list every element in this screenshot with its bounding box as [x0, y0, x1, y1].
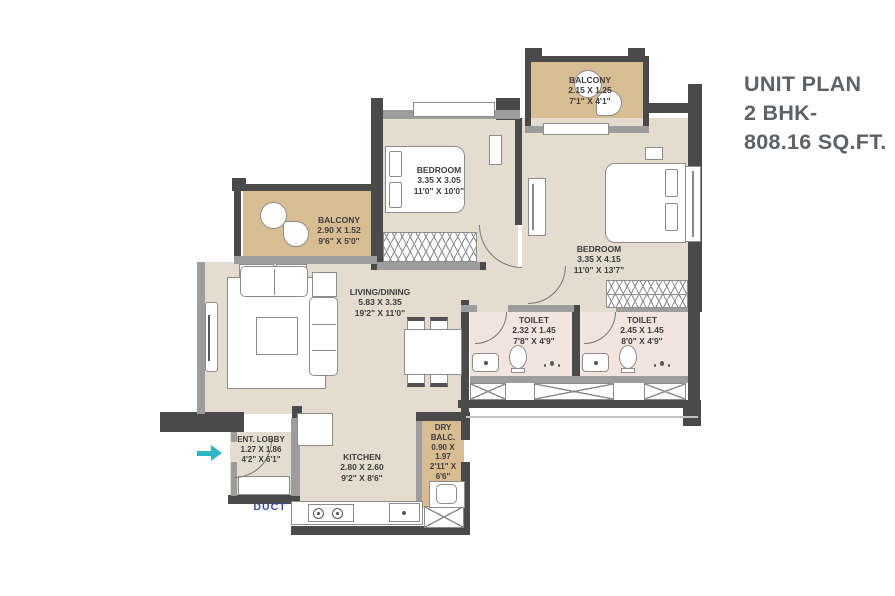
room-dim-ft: 8'0" X 4'9" — [598, 336, 686, 346]
window — [543, 123, 609, 135]
kitchen-sink — [389, 503, 420, 522]
room-name: TOILET — [598, 315, 686, 325]
burner-center — [317, 512, 320, 515]
wc-base — [621, 368, 635, 373]
wc — [619, 345, 637, 369]
room-dim-ft: 7'1" X 4'1" — [543, 96, 637, 106]
wall — [683, 400, 701, 426]
entry-arrow-icon — [197, 444, 227, 462]
ledge-line — [466, 416, 698, 418]
wall — [234, 184, 377, 191]
service-ledge — [470, 383, 506, 400]
service-ledge — [644, 383, 686, 400]
coffee-table — [256, 317, 298, 355]
wall — [416, 421, 422, 511]
bedside-table — [489, 135, 502, 165]
study-desk — [528, 178, 546, 236]
room-dim-m: 2.15 X 1.25 — [543, 85, 637, 95]
room-label-dry-balcony: DRY BALC. 0.90 X 1.97 2'11" X 6'6" — [425, 423, 461, 482]
bedside-table — [645, 147, 663, 160]
room-dim-m: 2.80 X 2.60 — [316, 462, 408, 472]
wall — [515, 118, 522, 225]
room-dim-ft: 11'0" X 13'7" — [553, 265, 645, 275]
room-label-bedroom-2: BEDROOM 3.35 X 4.15 11'0" X 13'7" — [553, 244, 645, 275]
room-dim-m: 5.83 X 3.35 — [334, 297, 426, 307]
tv-screen — [208, 315, 210, 361]
room-dim-ft: 19'2" X 11'0" — [334, 308, 426, 318]
hob — [308, 504, 354, 522]
room-label-living-dining: LIVING/DINING 5.83 X 3.35 19'2" X 11'0" — [334, 287, 426, 318]
window-mullion — [692, 171, 694, 237]
wall — [643, 56, 649, 130]
wall — [470, 376, 688, 383]
wall — [525, 56, 531, 130]
floor-plan: BALCONY 2.15 X 1.25 7'1" X 4'1" BEDROOM … — [0, 0, 895, 596]
room-label-bedroom-1: BEDROOM 3.35 X 3.05 11'0" X 10'0" — [393, 165, 485, 196]
wardrobe — [383, 232, 477, 262]
room-dim-ft: 2'11" X 6'6" — [425, 462, 461, 482]
wardrobe — [606, 280, 688, 308]
wc-base — [511, 368, 525, 373]
room-label-kitchen: KITCHEN 2.80 X 2.60 9'2" X 8'6" — [316, 452, 408, 483]
basin-tap — [594, 361, 598, 365]
washbasin — [582, 353, 609, 372]
sofa-cushion-divider — [312, 350, 336, 351]
plan-title: UNIT PLAN 2 BHK- 808.16 SQ.FT. — [744, 70, 887, 156]
title-line-3: 808.16 SQ.FT. — [744, 128, 887, 157]
dining-table — [404, 329, 462, 375]
room-name: TOILET — [489, 315, 579, 325]
window — [685, 166, 701, 242]
sofa-cushion-divider — [312, 324, 336, 325]
washing-machine — [429, 481, 465, 508]
burner-center — [336, 512, 339, 515]
title-line-2: 2 BHK- — [744, 99, 887, 128]
room-name: BALCONY — [543, 75, 637, 85]
wall — [197, 262, 205, 414]
burner-icon — [332, 508, 343, 519]
entry-arrow-bar — [197, 451, 212, 456]
room-label-toilet-2: TOILET 2.45 X 1.45 8'0" X 4'9" — [598, 315, 686, 346]
entry-arrow-head — [211, 445, 222, 461]
room-dim-ft: 4'2" X 6'1" — [226, 455, 296, 465]
wall — [461, 300, 469, 414]
washbasin — [472, 353, 499, 372]
wall — [688, 312, 700, 404]
title-line-1: UNIT PLAN — [744, 70, 887, 99]
washing-machine-drum — [436, 484, 457, 504]
burner-icon — [313, 508, 324, 519]
pillow — [665, 169, 678, 197]
wall — [377, 262, 480, 270]
room-label-ent-lobby: ENT. LOBBY 1.27 X 1.86 4'2" X 6'1" — [226, 435, 296, 464]
room-name: BEDROOM — [393, 165, 485, 175]
sofa-section — [240, 266, 308, 297]
room-dim-ft: 9'6" X 5'0" — [293, 236, 385, 246]
desk-edge — [532, 184, 534, 230]
wall — [234, 184, 241, 262]
room-dim-m: 1.27 X 1.86 — [226, 445, 296, 455]
shower-icon — [660, 361, 664, 366]
room-name: BALCONY — [293, 215, 385, 225]
fridge — [297, 413, 333, 446]
room-label-balcony-left: BALCONY 2.90 X 1.52 9'6" X 5'0" — [293, 215, 385, 246]
service-ledge — [424, 506, 464, 528]
dining-chair — [407, 317, 425, 330]
room-name: ENT. LOBBY — [226, 435, 296, 445]
room-name: DRY BALC. — [425, 423, 461, 443]
pillow — [665, 203, 678, 231]
room-label-toilet-1: TOILET 2.32 X 1.45 7'8" X 4'9" — [489, 315, 579, 346]
room-name: KITCHEN — [316, 452, 408, 462]
dining-chair — [430, 317, 448, 330]
room-dim-ft: 7'8" X 4'9" — [489, 336, 579, 346]
shower-icon — [550, 361, 554, 366]
room-name: BEDROOM — [553, 244, 645, 254]
wall — [461, 305, 477, 312]
wall — [525, 56, 649, 62]
tv-unit — [205, 302, 218, 372]
wardrobe-divider — [607, 294, 687, 295]
room-dim-m: 0.90 X 1.97 — [425, 443, 461, 463]
dining-chair — [407, 374, 425, 387]
room-name: LIVING/DINING — [334, 287, 426, 297]
room-dim-ft: 11'0" X 10'0" — [393, 186, 485, 196]
sink-tap — [402, 511, 406, 515]
room-dim-m: 2.32 X 1.45 — [489, 325, 579, 335]
wall — [508, 305, 574, 312]
room-dim-ft: 9'2" X 8'6" — [316, 473, 408, 483]
room-dim-m: 3.35 X 3.05 — [393, 175, 485, 185]
service-ledge — [534, 383, 614, 400]
wall — [458, 400, 700, 408]
wall — [234, 256, 377, 264]
sofa-cushion-divider — [274, 269, 275, 295]
duct-label: DUCT — [240, 501, 300, 513]
room-dim-m: 3.35 X 4.15 — [553, 254, 645, 264]
basin-tap — [484, 361, 488, 365]
wall — [649, 103, 688, 113]
wc — [509, 345, 527, 369]
room-label-balcony-top: BALCONY 2.15 X 1.25 7'1" X 4'1" — [543, 75, 637, 106]
room-dim-m: 2.90 X 1.52 — [293, 225, 385, 235]
room-dim-m: 2.45 X 1.45 — [598, 325, 686, 335]
dining-chair — [430, 374, 448, 387]
window — [413, 102, 495, 117]
wall — [160, 412, 244, 432]
shoe-cabinet — [238, 476, 290, 495]
